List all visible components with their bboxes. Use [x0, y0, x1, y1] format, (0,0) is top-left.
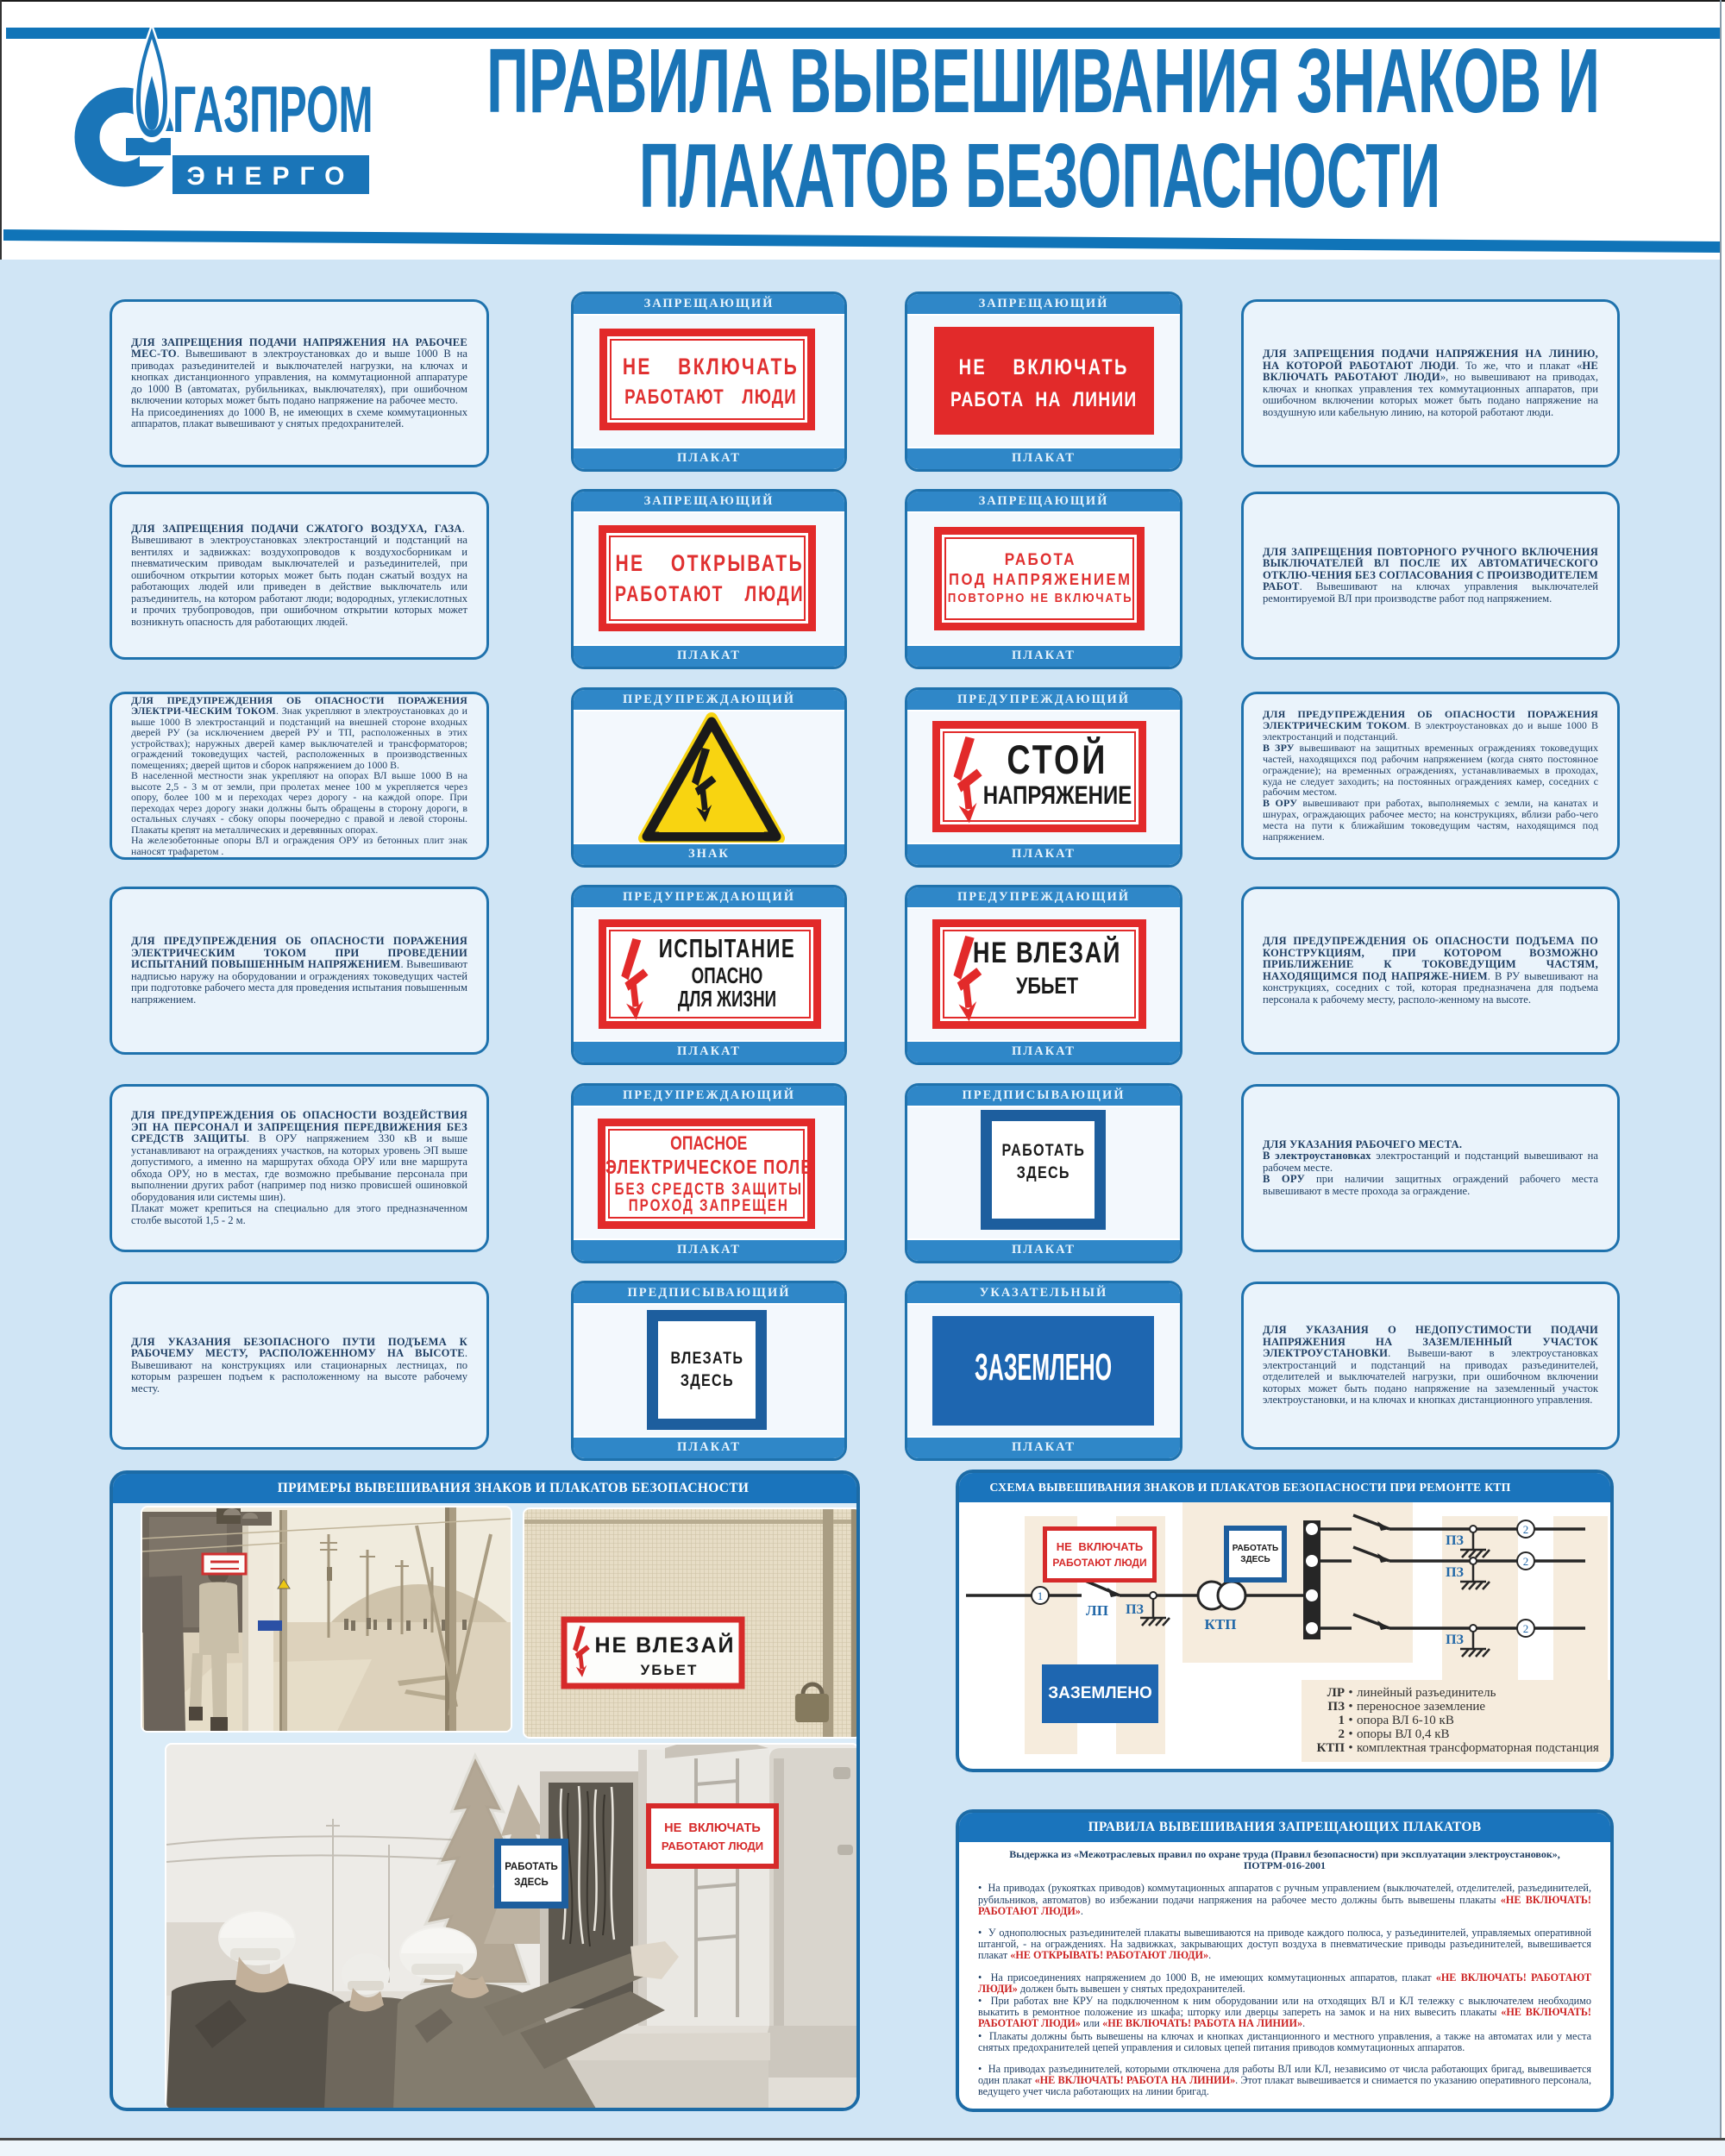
svg-text:КТП: КТП	[1205, 1616, 1237, 1633]
svg-text:НЕ ВЛЕЗАЙ: НЕ ВЛЕЗАЙ	[594, 1632, 735, 1658]
svg-text:1: 1	[1038, 1589, 1044, 1602]
svg-text:ПЗ: ПЗ	[1446, 1565, 1464, 1580]
svg-text:НЕ ВКЛЮЧАТЬ: НЕ ВКЛЮЧАТЬ	[664, 1821, 761, 1835]
svg-text:ЗДЕСЬ: ЗДЕСЬ	[514, 1877, 549, 1888]
svg-text:2: 2	[1523, 1622, 1529, 1635]
svg-text:ЛП: ЛП	[1086, 1602, 1108, 1619]
svg-text:ПЗ: ПЗ	[1126, 1602, 1144, 1617]
svg-text:2: 2	[1523, 1523, 1529, 1536]
svg-text:РАБОТАТЬ: РАБОТАТЬ	[505, 1862, 558, 1872]
svg-text:УБЬЕТ: УБЬЕТ	[641, 1662, 699, 1678]
svg-text:ПЗ: ПЗ	[1446, 1633, 1464, 1647]
svg-text:ПЗ: ПЗ	[1446, 1533, 1464, 1548]
svg-text:РАБОТАЮТ ЛЮДИ: РАБОТАЮТ ЛЮДИ	[662, 1839, 763, 1852]
svg-text:ЭНЕРГО: ЭНЕРГО	[187, 162, 355, 191]
svg-text:ГАЗПРОМ: ГАЗПРОМ	[172, 73, 373, 147]
svg-text:2: 2	[1523, 1555, 1529, 1568]
